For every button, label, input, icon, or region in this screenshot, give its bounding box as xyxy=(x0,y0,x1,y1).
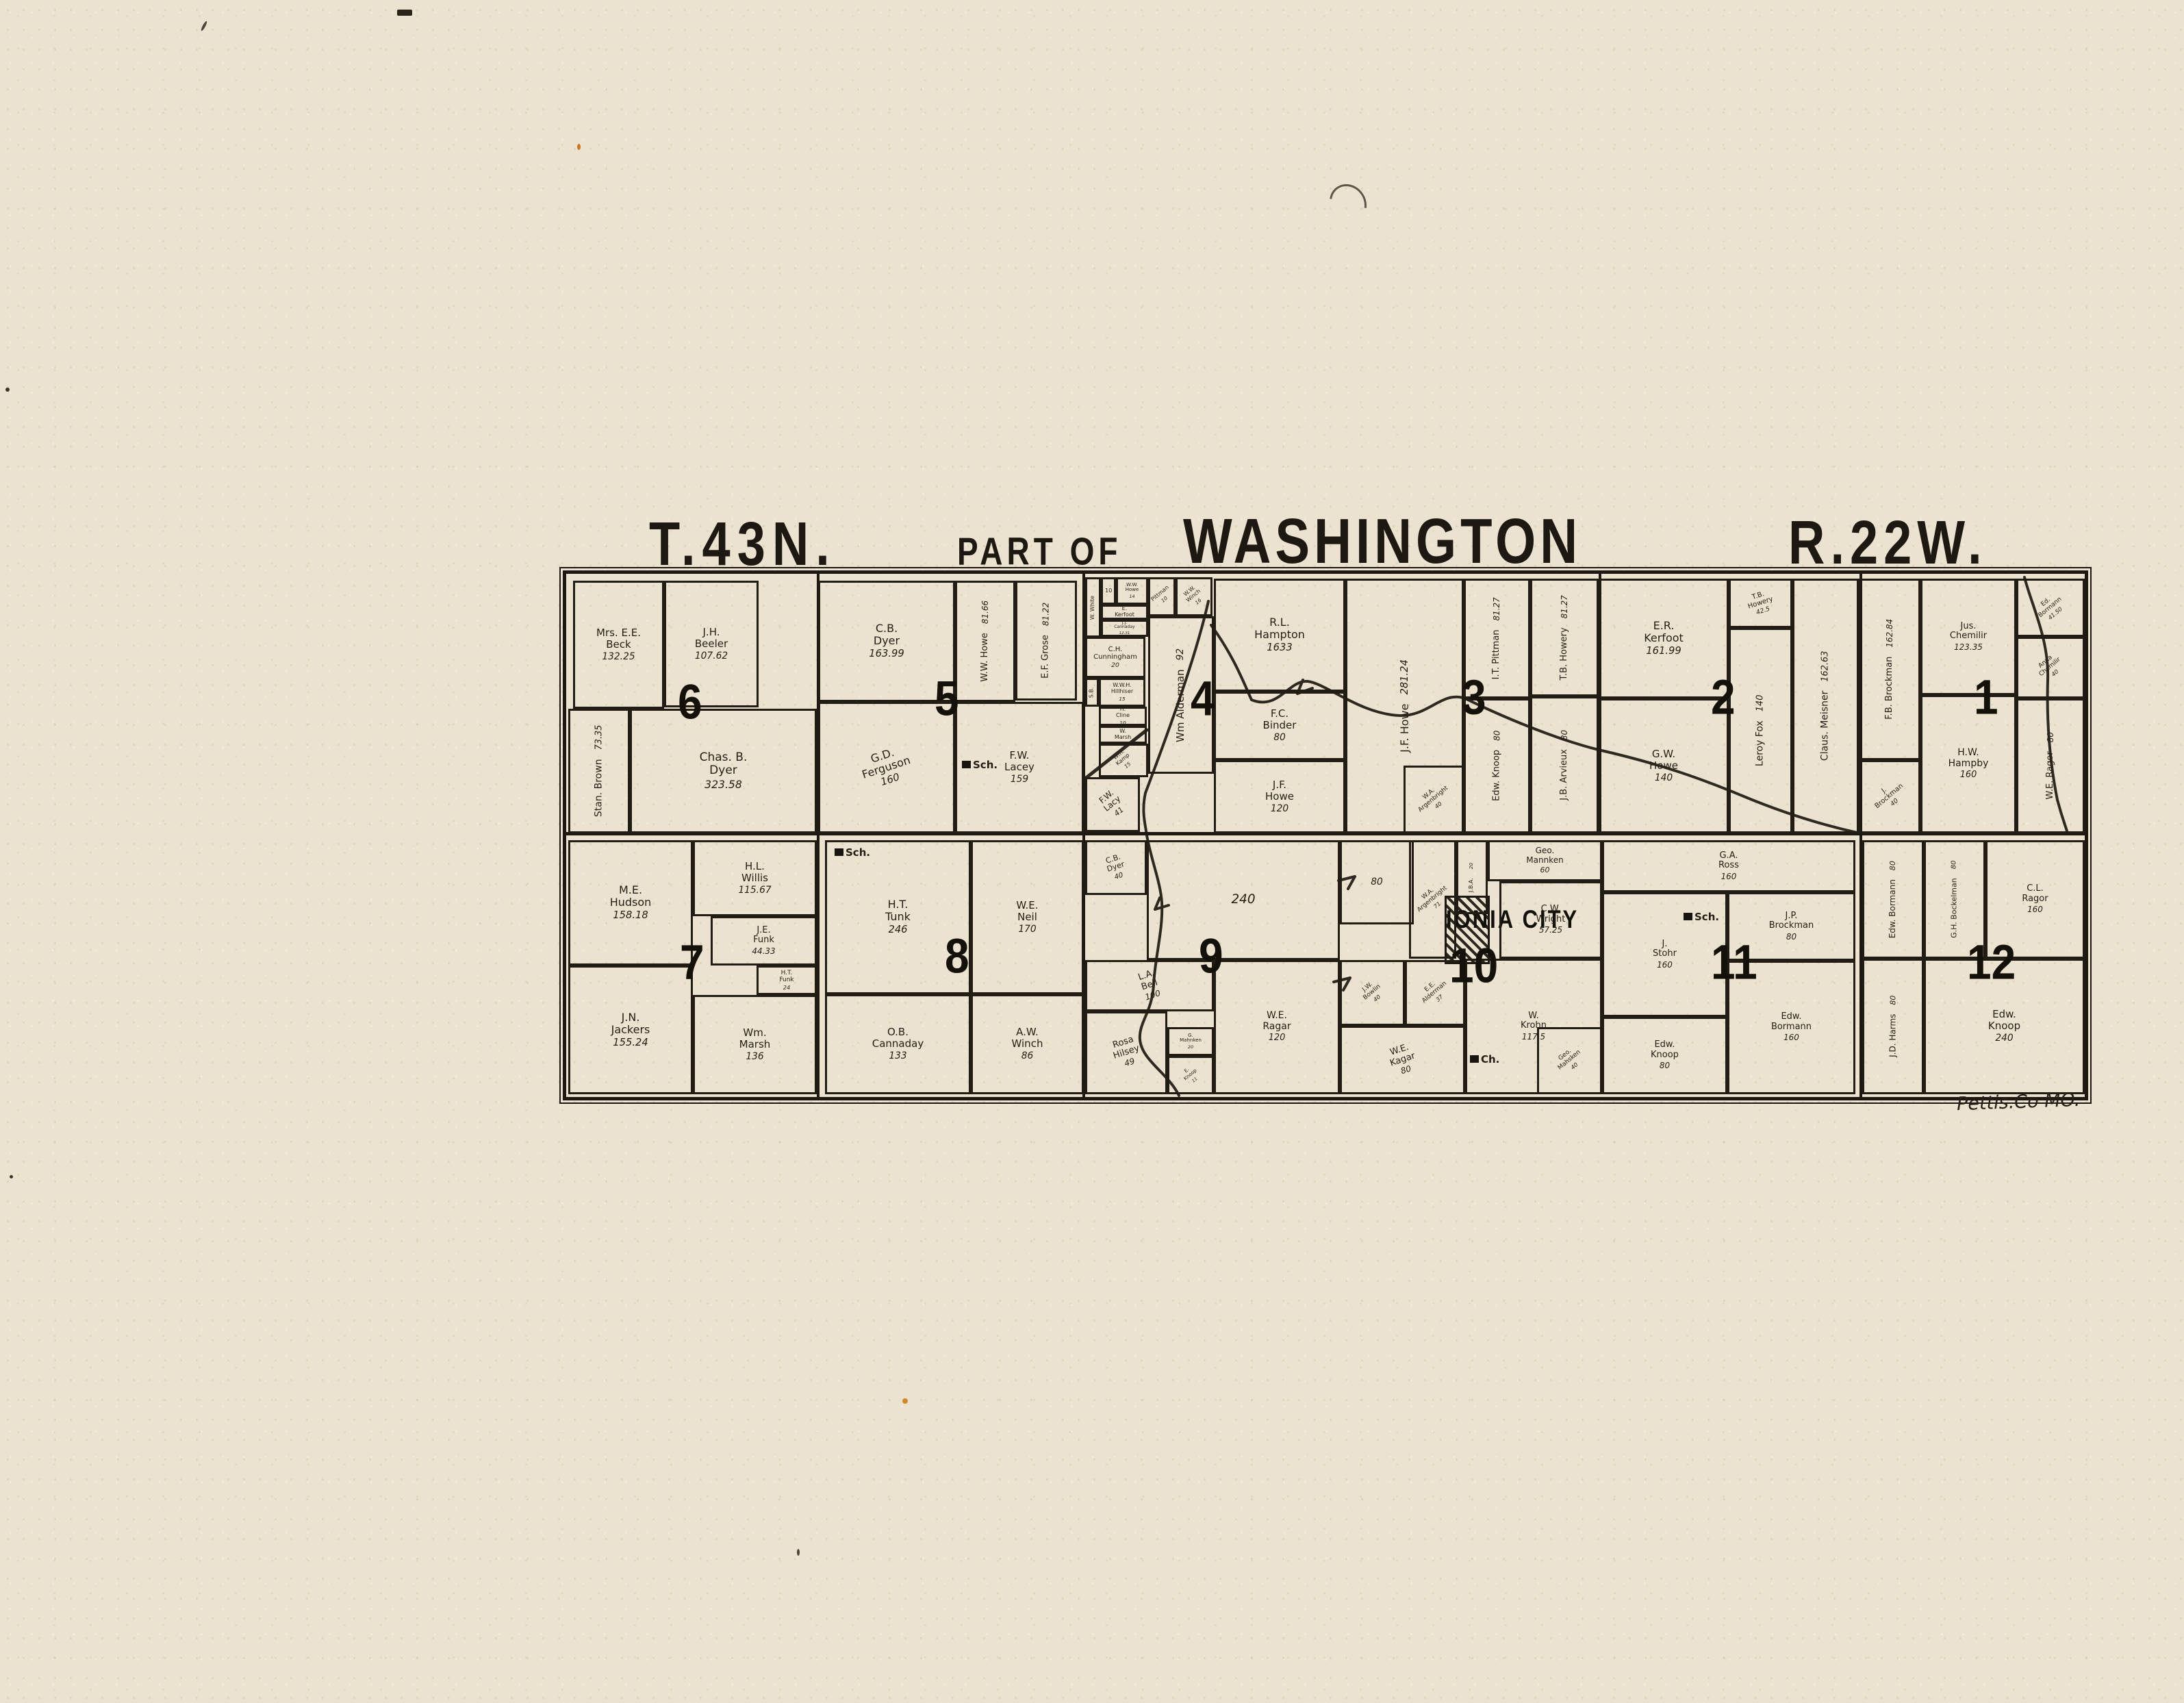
parcel: W.E. Ragar120 xyxy=(1214,960,1340,1094)
paper-speck xyxy=(902,1398,908,1404)
section-number: 3 xyxy=(1462,672,1486,722)
parcel-label: M.E. Hudson158.18 xyxy=(596,884,665,921)
church-mark: Ch. xyxy=(1470,1053,1499,1065)
parcel-label: Rosa Hilsey49 xyxy=(1097,1031,1156,1075)
parcel-label: Stan. Brown73.35 xyxy=(594,725,605,818)
parcel: J.D. Harms80 xyxy=(1862,959,1924,1094)
parcel: J.F. Howe120 xyxy=(1214,760,1345,833)
paper-crescent-mark xyxy=(1322,177,1374,229)
parcel-label: S.B. xyxy=(1089,687,1095,698)
parcel-label: Edw. Bormann160 xyxy=(1760,1012,1823,1042)
paper-speck xyxy=(10,1175,13,1178)
section-number: 1 xyxy=(1974,672,1998,722)
parcel-label: Anna Chemilir40 xyxy=(2027,646,2074,690)
parcel-label: 240 xyxy=(1231,893,1255,907)
parcel-label: J.W. Bowlin40 xyxy=(1353,974,1393,1011)
parcel-label: Mrs. E.E. Beck132.25 xyxy=(582,627,655,662)
parcel-label: E. Kerfoot xyxy=(1111,606,1138,618)
range-label-right: R.22W. xyxy=(1788,507,1988,578)
parcel-label: Edw. Knoop80 xyxy=(1492,731,1502,801)
map-credit: Pettis.Co MO. xyxy=(1957,1089,2081,1115)
parcel-label: G.W. Howe140 xyxy=(1636,748,1692,783)
parcel-label: E.F. Grose81.22 xyxy=(1041,603,1052,679)
parcel-label: 80 xyxy=(1371,877,1383,887)
parcel-label: H.T. Funk24 xyxy=(773,970,801,991)
parcel-label: Geo. Mannken60 xyxy=(1516,846,1575,874)
section-number: 6 xyxy=(678,677,702,727)
parcel-label: C.B. Dyer163.99 xyxy=(861,622,913,659)
parcel-label: Jus. Chemilir123.35 xyxy=(1940,622,1996,652)
parcel: L.A. Bell100 xyxy=(1085,960,1214,1011)
school-mark: Sch. xyxy=(835,846,870,859)
parcel: G.A. Ross160 xyxy=(1602,840,1855,892)
section-number: 2 xyxy=(1711,672,1736,722)
section-number: 9 xyxy=(1199,931,1223,981)
parcel: J.E. Funk44.33 xyxy=(711,916,817,966)
parcel-label: H.L. Willis115.67 xyxy=(730,861,780,896)
section-number: 12 xyxy=(1967,937,2016,987)
parcel-label: E.R. Kerfoot161.99 xyxy=(1631,620,1696,657)
parcel: 80 xyxy=(1340,840,1414,924)
parcel-label: W. Marsh xyxy=(1110,729,1135,741)
parcel: E.F. Grose81.22 xyxy=(1015,581,1077,701)
parcel: Leroy Fox140 xyxy=(1729,628,1792,833)
parcel-label: Claus. Meisner162.63 xyxy=(1820,651,1831,761)
parcel-label: C.W. Wright57.25 xyxy=(1525,905,1577,935)
parcel: G. Mahnken20 xyxy=(1167,1027,1214,1056)
building-dot-icon xyxy=(1470,1055,1479,1063)
parcel: W.E. Kagar80 xyxy=(1340,1026,1465,1094)
parcel-label: H.T. Tunk246 xyxy=(874,898,923,935)
parcel: W.W.H. Hillhiser15 xyxy=(1099,678,1145,707)
parcel-label: J.J. Cannaday12.31 xyxy=(1111,621,1138,636)
parcel-label: O.B. Cannaday133 xyxy=(860,1026,936,1061)
parcel-label: W.W.H. Hillhiser15 xyxy=(1101,683,1143,702)
parcel-label: J.B.A.20 xyxy=(1469,862,1475,892)
parcel: Wm. Marsh136 xyxy=(693,995,817,1094)
parcel-label: W. White xyxy=(1090,595,1096,619)
parcel-label: J.P. Brockman80 xyxy=(1762,911,1822,942)
title-part-of: PART OF xyxy=(957,529,1121,574)
parcel: Jus. Chemilir123.35 xyxy=(1920,579,2016,695)
parcel-label: L.A. Bell100 xyxy=(1128,966,1171,1006)
parcel-label: Geo. Mahsken40 xyxy=(1546,1039,1593,1083)
parcel: H. Cline10 xyxy=(1099,707,1147,726)
section-number: 7 xyxy=(680,937,704,987)
parcel-label: F.B. Brockman162.84 xyxy=(1885,619,1895,720)
parcel: M.E. Hudson158.18 xyxy=(568,840,693,966)
building-dot-icon xyxy=(1684,913,1692,920)
parcel-label: W.W. Howe81.66 xyxy=(980,601,991,682)
parcel: F.B. Brockman162.84 xyxy=(1859,579,1920,760)
plat-map: IONIA CITY Mrs. E.E. Beck132.25J.H. Beel… xyxy=(563,570,2088,1100)
parcel-label: W.E. Ragor80 xyxy=(2046,732,2056,799)
parcel: Wm. Kamp15 xyxy=(1099,744,1148,777)
parcel: 240 xyxy=(1147,840,1340,960)
parcel-label: G. Mahnken20 xyxy=(1176,1033,1205,1050)
parcel-label: Edw. Knoop240 xyxy=(1975,1009,2034,1044)
parcel: Anna Chemilir40 xyxy=(2016,637,2085,698)
school-mark: Sch. xyxy=(962,759,998,771)
parcel-label: T.B. Howery81.27 xyxy=(1560,595,1570,680)
parcel-label: Wm. Marsh136 xyxy=(726,1027,784,1062)
parcel-label: W.E. Kagar80 xyxy=(1375,1038,1430,1082)
parcel: G.W. Howe140 xyxy=(1599,698,1729,833)
parcel: Rosa Hilsey49 xyxy=(1085,1011,1167,1094)
parcel-label: H.W. Hampby160 xyxy=(1936,748,2001,781)
school-mark: Sch. xyxy=(1684,911,1719,923)
parcel: Geo. Mannken60 xyxy=(1488,840,1602,881)
parcel: F.C. Binder80 xyxy=(1214,692,1345,760)
parcel: W.W. Winch16 xyxy=(1176,577,1212,616)
parcel: W.W. Howe81.66 xyxy=(955,581,1015,702)
parcel: 10 xyxy=(1101,577,1116,605)
parcel: Geo. Mahsken40 xyxy=(1537,1027,1602,1094)
parcel: Mrs. E.E. Beck132.25 xyxy=(573,581,664,709)
parcel: E. Knoop11 xyxy=(1167,1056,1214,1094)
parcel: H.W. Hampby160 xyxy=(1920,695,2016,833)
building-dot-icon xyxy=(962,761,971,768)
parcel-label: W.E. Neil170 xyxy=(1005,900,1050,935)
parcel: F.W. Lacy41 xyxy=(1085,777,1140,832)
paper-speck xyxy=(200,21,207,31)
parcel-label: R.L. Hampton1633 xyxy=(1243,616,1317,653)
parcel-label: T.B. Howery42.5 xyxy=(1738,585,1783,620)
parcel: R.L. Hampton1633 xyxy=(1214,579,1345,692)
building-dot-icon xyxy=(835,848,843,856)
parcel-label: J.E. Funk44.33 xyxy=(745,926,783,956)
parcel-label: J.D. Harms80 xyxy=(1888,996,1897,1057)
parcel: H.L. Willis115.67 xyxy=(693,840,817,916)
section-number: 10 xyxy=(1449,941,1498,990)
parcel-label: C.L. Ragor160 xyxy=(2012,884,2058,914)
parcel: Chas. B. Dyer323.58 xyxy=(630,709,817,833)
parcel: C.W. Wright57.25 xyxy=(1499,881,1602,959)
parcel-label: Ed. Bormann41.50 xyxy=(2029,587,2073,629)
parcel-label: C.H. Cunningham20 xyxy=(1087,646,1143,670)
parcel: Pittman10 xyxy=(1148,577,1176,616)
parcel-label: J.F. Howe281.24 xyxy=(1399,659,1411,753)
section-number: 8 xyxy=(945,931,969,981)
parcel: H.T. Funk24 xyxy=(757,966,817,995)
parcel-label: Edw. Bormann80 xyxy=(1888,861,1897,938)
parcel-label: F.W. Lacy41 xyxy=(1089,782,1136,828)
parcel: E. Kerfoot xyxy=(1101,605,1148,620)
parcel: J.W. Bowlin40 xyxy=(1340,960,1405,1026)
parcel: W.E. Neil170 xyxy=(971,840,1084,994)
parcel-label: Wm. Kamp15 xyxy=(1106,744,1141,778)
parcel: Stan. Brown73.35 xyxy=(568,709,630,833)
paper-speck xyxy=(397,10,412,16)
parcel: A.W. Winch86 xyxy=(971,994,1084,1094)
parcel-label: J. Brockman40 xyxy=(1866,774,1913,819)
parcel: J.N. Jackers155.24 xyxy=(568,966,693,1094)
parcel-label: C.B. Dyer40 xyxy=(1095,850,1137,885)
parcel-label: J.H. Beeler107.62 xyxy=(685,627,738,661)
parcel: T.B. Howery42.5 xyxy=(1729,579,1792,628)
parcel-label: H. Cline10 xyxy=(1113,707,1134,726)
parcel: J. Brockman40 xyxy=(1859,760,1920,833)
parcel-label: W.A. Argenbright40 xyxy=(1407,774,1460,824)
parcel: T.B. Howery81.27 xyxy=(1530,579,1599,696)
township-label-left: T.43N. xyxy=(649,508,837,579)
parcel-label: F.W. Lacey159 xyxy=(993,750,1046,785)
parcel-label: I.T. Pittman81.27 xyxy=(1492,597,1502,679)
parcel-label: Edw. Knoop80 xyxy=(1639,1040,1690,1070)
parcel: S.B. xyxy=(1085,678,1099,707)
parcel: J.B. Arvieux80 xyxy=(1530,696,1599,833)
section-number: 5 xyxy=(935,674,959,723)
parcel-label: 10 xyxy=(1105,588,1112,594)
parcel: Claus. Meisner162.63 xyxy=(1792,579,1859,833)
parcel: O.B. Cannaday133 xyxy=(825,994,971,1094)
parcel-label: Wm Alderman92 xyxy=(1176,648,1187,742)
parcel-label: E. Knoop11 xyxy=(1177,1062,1204,1089)
parcel-label: G.H. Bockelman80 xyxy=(1951,861,1959,939)
parcel: W.W. Howe14 xyxy=(1116,577,1148,605)
parcel: E.R. Kerfoot161.99 xyxy=(1599,579,1729,698)
parcel-label: W.A. Argenbright71 xyxy=(1409,877,1456,922)
paper-speck xyxy=(5,388,10,392)
parcel: W. White xyxy=(1085,577,1101,638)
parcel-label: G.A. Ross160 xyxy=(1707,851,1749,881)
paper-speck xyxy=(577,144,581,150)
parcel-label: A.W. Winch86 xyxy=(999,1026,1056,1061)
parcel-label: J.N. Jackers155.24 xyxy=(600,1011,661,1048)
parcel-label: Chas. B. Dyer323.58 xyxy=(684,751,763,791)
section-number: 4 xyxy=(1191,674,1215,723)
parcel: Edw. Knoop80 xyxy=(1602,1017,1727,1094)
parcel-label: J. Stohr160 xyxy=(1649,939,1681,970)
parcel: C.B. Dyer40 xyxy=(1085,840,1147,895)
parcel: J.B.A.20 xyxy=(1456,840,1488,914)
parcel-label: F.C. Binder80 xyxy=(1252,708,1307,743)
parcel-label: J.B. Arvieux80 xyxy=(1560,730,1570,800)
title-township-name: WASHINGTON xyxy=(1183,505,1582,578)
parcel-label: W.E. Ragar120 xyxy=(1251,1011,1303,1044)
parcel-label: G.D. Ferguson160 xyxy=(844,738,929,798)
parcel-label: Pittman10 xyxy=(1150,585,1174,609)
parcel: W.A. Argenbright40 xyxy=(1404,766,1464,833)
parcel-label: W.W. Howe14 xyxy=(1119,583,1145,600)
parcel-label: W.W. Winch16 xyxy=(1176,579,1212,614)
paper-speck xyxy=(797,1549,800,1556)
parcel: C.H. Cunningham20 xyxy=(1085,637,1145,678)
parcel: Edw. Bormann80 xyxy=(1862,840,1924,959)
section-number: 11 xyxy=(1711,937,1757,987)
parcel-label: Leroy Fox140 xyxy=(1755,695,1766,766)
parcel: W. Marsh xyxy=(1099,726,1147,744)
parcel: J.J. Cannaday12.31 xyxy=(1101,620,1148,637)
parcel-label: J.F. Howe120 xyxy=(1257,779,1303,814)
parcel: Ed. Bormann41.50 xyxy=(2016,579,2085,637)
parcel: W.E. Ragor80 xyxy=(2016,698,2085,833)
